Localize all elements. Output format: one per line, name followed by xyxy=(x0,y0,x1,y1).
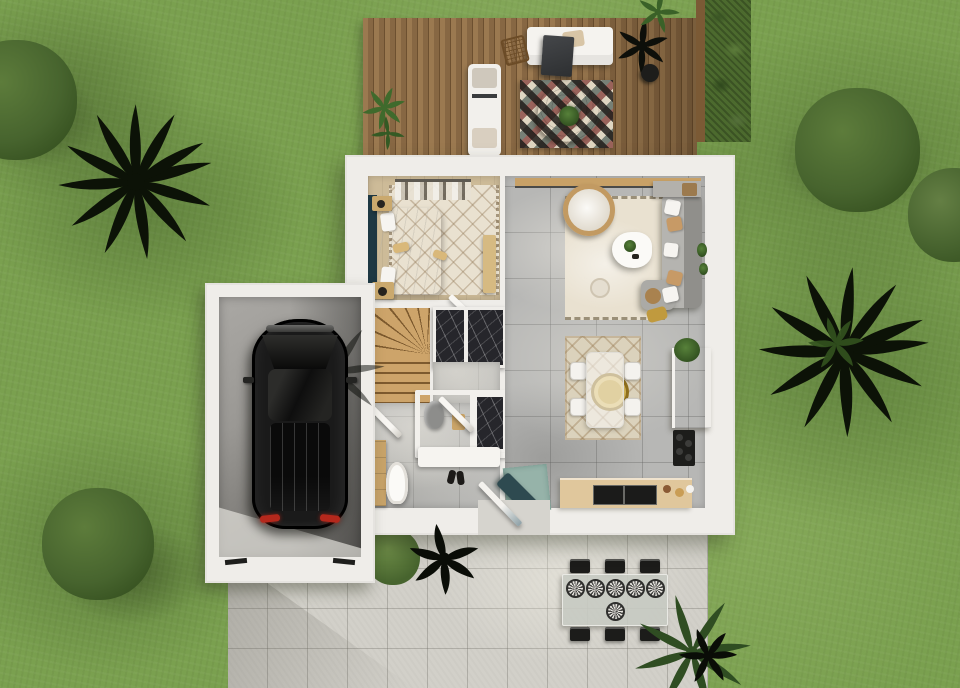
palm-green-accent xyxy=(790,298,882,390)
house xyxy=(345,155,735,535)
outdoor-chair xyxy=(570,627,590,641)
coffee-table xyxy=(612,232,652,268)
counter-item xyxy=(675,488,684,497)
vanity-counter xyxy=(418,447,500,467)
wall-plant xyxy=(699,263,708,275)
lounger-strap xyxy=(472,94,497,98)
plate xyxy=(606,579,625,598)
storage-basket xyxy=(682,183,697,196)
black-plant-patio-corner xyxy=(660,608,756,688)
dining-chair xyxy=(570,362,587,380)
counter-item xyxy=(663,485,671,493)
outdoor-chair xyxy=(640,559,660,573)
dining-chair xyxy=(624,398,641,416)
burner xyxy=(685,454,692,461)
lounger-cushion xyxy=(472,128,497,148)
marble-wardrobe xyxy=(433,307,506,368)
sofa-pillow xyxy=(664,199,682,217)
marble-shower xyxy=(474,394,506,452)
burner xyxy=(676,448,683,455)
round-tree-top-right xyxy=(795,88,920,212)
toilet xyxy=(424,401,444,429)
table-book xyxy=(632,254,639,259)
black-plant-patio xyxy=(385,500,503,618)
car xyxy=(252,319,348,529)
sofa-pillow xyxy=(666,216,683,232)
green-plant-deck-corner xyxy=(622,0,694,48)
wardrobe-divider xyxy=(464,307,468,362)
plate xyxy=(566,579,585,598)
lounge-chair xyxy=(468,64,501,156)
counter-item xyxy=(686,485,694,493)
green-plant-deck-left-small xyxy=(360,105,416,161)
outdoor-chair xyxy=(570,559,590,573)
nightstand xyxy=(372,196,392,211)
car-mirror xyxy=(346,377,357,383)
plate xyxy=(606,602,625,621)
car-taillight xyxy=(320,514,341,523)
deck-throw-blanket xyxy=(541,35,575,77)
lounger-cushion xyxy=(472,68,497,88)
table-plant xyxy=(559,106,579,126)
kitchen-sink xyxy=(593,485,657,505)
outdoor-chair xyxy=(605,559,625,573)
table-plant xyxy=(624,240,636,252)
burner xyxy=(676,434,683,441)
dining-table xyxy=(586,352,624,428)
second-toilet xyxy=(386,462,408,504)
outdoor-chair xyxy=(605,627,625,641)
car-windshield xyxy=(262,335,338,369)
bedroom-bench xyxy=(483,235,496,293)
round-tree-bottom-left xyxy=(42,488,154,600)
car-roof xyxy=(268,369,332,421)
threshold-mark xyxy=(225,558,247,565)
sofa-pillow xyxy=(662,286,680,304)
decor-bowl xyxy=(377,200,385,208)
wall-plant xyxy=(697,243,707,257)
dining-chair xyxy=(624,362,641,380)
palm-tree-top-left xyxy=(52,98,220,266)
kitchen-plant xyxy=(674,338,700,362)
floor-plan-render xyxy=(0,0,960,688)
jute-pouf xyxy=(645,288,661,304)
sofa-pillow xyxy=(663,242,678,257)
garage xyxy=(205,283,375,583)
burner xyxy=(685,440,692,447)
threshold-mark xyxy=(333,558,355,565)
hedge xyxy=(696,0,751,142)
bed-pillow xyxy=(380,212,396,232)
cooktop xyxy=(673,430,695,466)
car-hood xyxy=(266,325,334,332)
car-rear-window xyxy=(270,423,330,511)
decor-bowl xyxy=(378,287,387,296)
dining-chair xyxy=(570,398,587,416)
car-taillight xyxy=(260,514,281,523)
pouf xyxy=(590,278,610,298)
wire-chair xyxy=(500,34,530,66)
car-mirror xyxy=(243,377,254,383)
hanging-chair xyxy=(563,184,615,236)
nightstand xyxy=(372,282,394,299)
clothes-rack xyxy=(395,179,471,200)
plate xyxy=(586,579,605,598)
